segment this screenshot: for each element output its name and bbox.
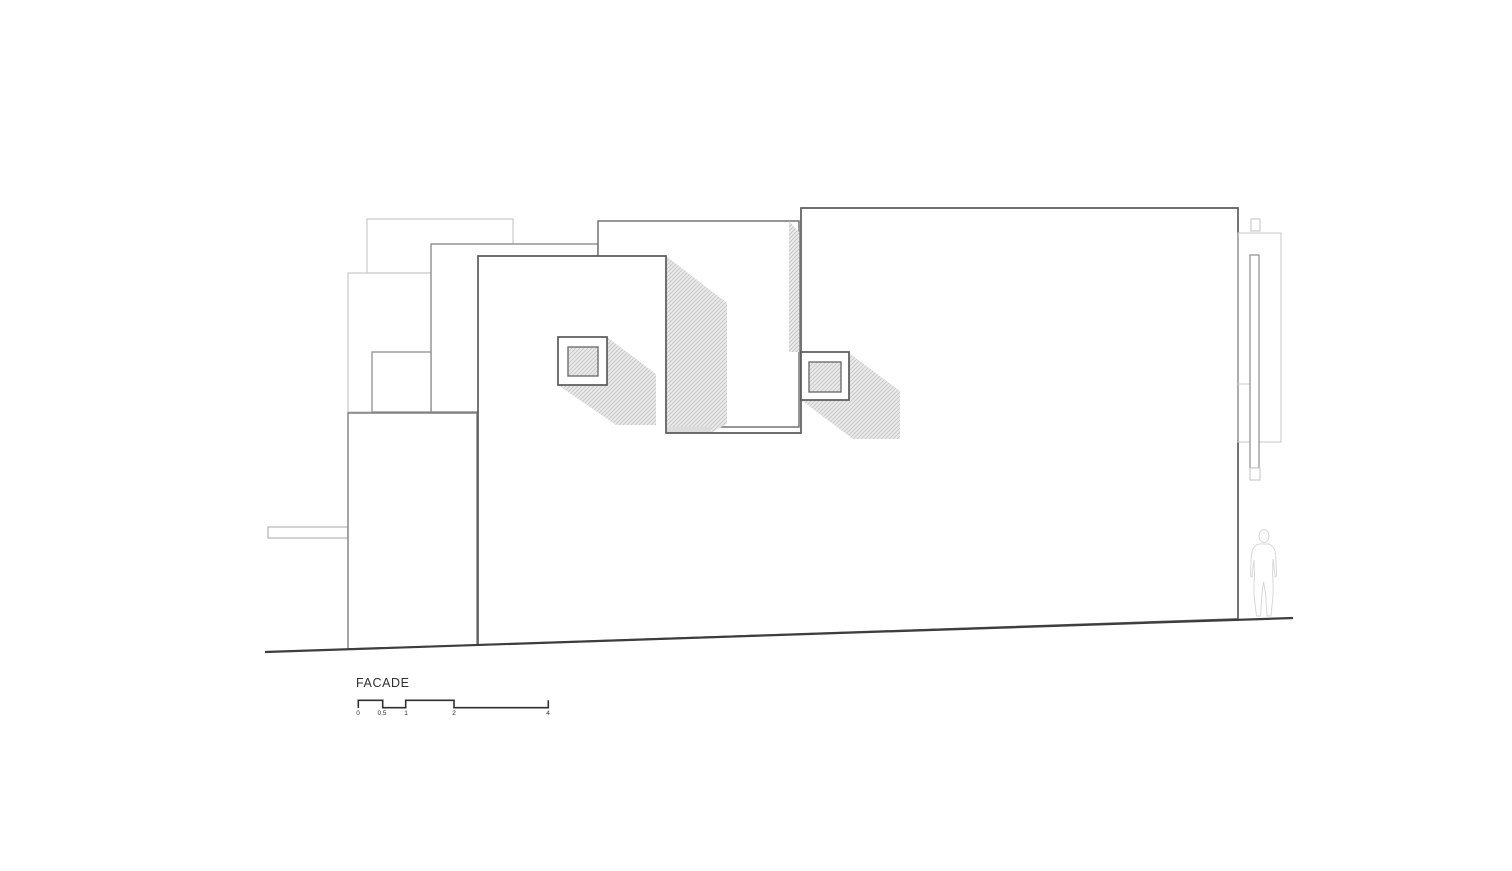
scale-tick-label: 4 bbox=[546, 710, 550, 717]
window-1-glass bbox=[568, 347, 598, 376]
side-panel-cap bbox=[1251, 219, 1260, 231]
volume-d-base-shadow bbox=[666, 427, 711, 433]
side-post-foot bbox=[1250, 468, 1260, 480]
elevation-drawing-canvas: FACADE 0 0.5 1 2 4 bbox=[0, 0, 1512, 871]
volume-f bbox=[348, 413, 477, 649]
volume-c bbox=[372, 352, 431, 412]
human-figure-head bbox=[1259, 530, 1269, 543]
volume-e-edge-shadow bbox=[789, 221, 799, 352]
side-post bbox=[1250, 255, 1259, 468]
scale-tick-label: 1 bbox=[404, 710, 408, 717]
window-2-glass bbox=[809, 362, 841, 392]
scale-tick-label: 2 bbox=[452, 710, 456, 717]
scale-bar bbox=[358, 700, 548, 708]
canopy bbox=[268, 527, 348, 538]
human-figure-body bbox=[1251, 544, 1277, 616]
scale-tick-label: 0.5 bbox=[377, 710, 386, 717]
human-figure bbox=[1251, 530, 1277, 617]
elevation-drawing bbox=[0, 0, 1512, 871]
scale-tick-label: 0 bbox=[356, 710, 360, 717]
drawing-title: FACADE bbox=[356, 676, 410, 690]
